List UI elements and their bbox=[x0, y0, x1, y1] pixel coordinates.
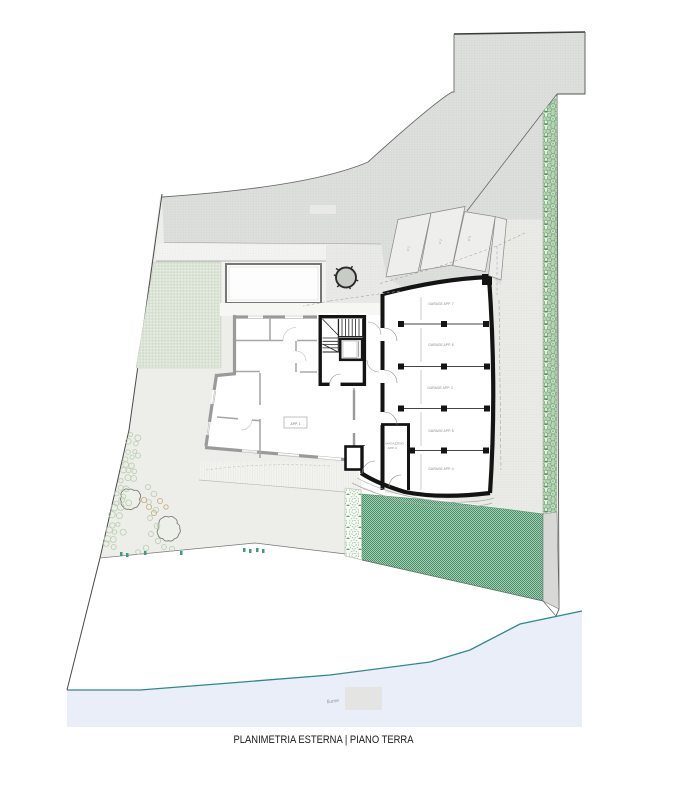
svg-text:GARAGE APP. 5: GARAGE APP. 5 bbox=[428, 429, 453, 433]
svg-text:GARAGE APP. 6: GARAGE APP. 6 bbox=[428, 343, 453, 347]
svg-text:APP. 2: APP. 2 bbox=[388, 446, 398, 450]
svg-text:GARAGE APP. 3: GARAGE APP. 3 bbox=[427, 386, 452, 390]
svg-text:PLANIMETRIA ESTERNA | PIANO TE: PLANIMETRIA ESTERNA | PIANO TERRA bbox=[234, 734, 414, 746]
svg-text:GARAGE APP. 4: GARAGE APP. 4 bbox=[428, 467, 453, 471]
svg-text:APP. 1: APP. 1 bbox=[290, 422, 300, 426]
svg-text:MAGAZZINO: MAGAZZINO bbox=[386, 442, 405, 446]
svg-text:P 3: P 3 bbox=[467, 236, 472, 242]
svg-text:GARAGE APP. 7: GARAGE APP. 7 bbox=[428, 302, 453, 306]
